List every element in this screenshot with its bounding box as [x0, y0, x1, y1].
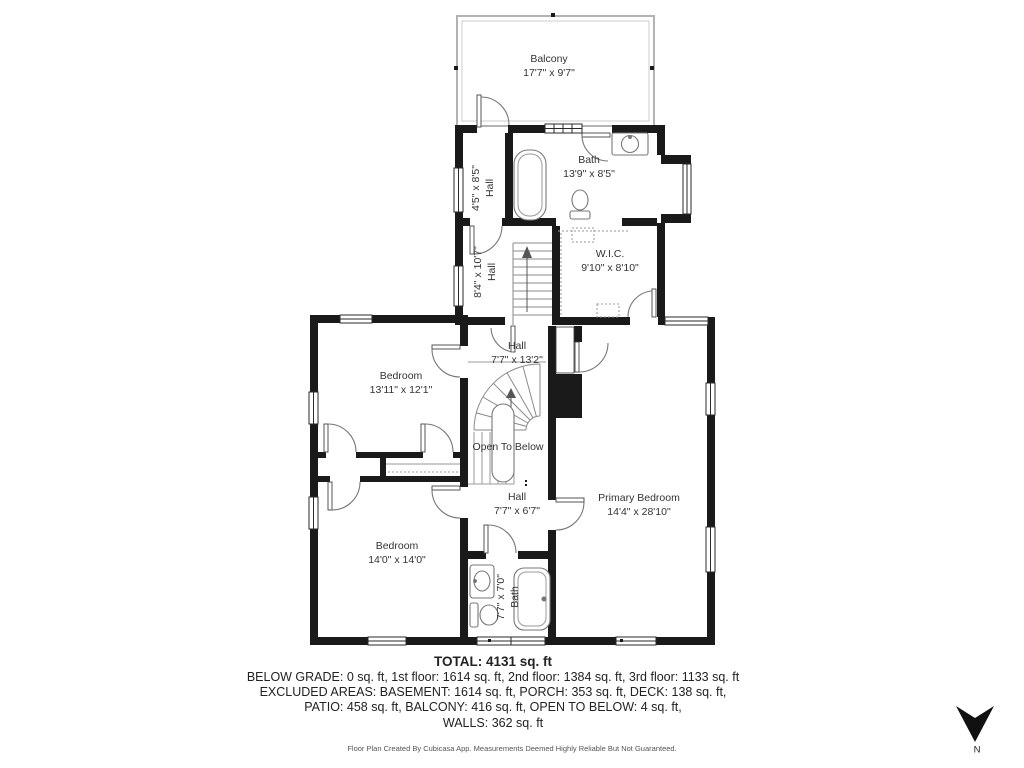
floor-plan-drawing — [0, 0, 1024, 768]
room-dims: 13'11" x 12'1" — [370, 384, 433, 398]
disclaimer-text: Floor Plan Created By Cubicasa App. Meas… — [347, 744, 676, 753]
room-label-wic: W.I.C. 9'10" x 8'10" — [581, 248, 639, 276]
room-label-bedroom-lower: Bedroom 14'0" x 14'0" — [368, 540, 426, 568]
room-dims: 7'7" x 13'2" — [491, 354, 543, 368]
toilet-lower — [470, 603, 498, 627]
room-label-bedroom-upper: Bedroom 13'11" x 12'1" — [370, 370, 433, 398]
bathtub-upper — [514, 150, 546, 220]
stair-arrow-up — [522, 246, 532, 258]
room-name: Bath — [509, 586, 523, 608]
room-name: Hall — [486, 263, 500, 281]
room-dims: 14'0" x 14'0" — [368, 554, 426, 568]
staircase-upper — [513, 243, 552, 325]
room-dims: 7'7" x 7'0" — [495, 574, 509, 620]
room-dims: 9'10" x 8'10" — [581, 262, 639, 276]
north-label: N — [974, 745, 981, 756]
room-dims: 17'7" x 9'7" — [523, 67, 575, 81]
room-name: Bedroom — [376, 540, 419, 554]
stair-arrow-curved — [506, 388, 516, 398]
area-summary: TOTAL: 4131 sq. ft BELOW GRADE: 0 sq. ft… — [247, 654, 739, 731]
room-label-hall-mid: 8'4" x 10'7" Hall — [472, 246, 500, 298]
room-label-bath-lower: 7'7" x 7'0" Bath — [495, 574, 523, 620]
room-label-hall-lower: Hall 7'7" x 6'7" — [494, 491, 540, 519]
room-name: Hall — [484, 179, 498, 197]
room-name: Open To Below — [472, 441, 543, 455]
room-label-balcony: Balcony 17'7" x 9'7" — [523, 53, 575, 81]
room-name: Primary Bedroom — [598, 492, 680, 506]
total-area: TOTAL: 4131 sq. ft — [247, 654, 739, 670]
room-name: Balcony — [530, 53, 567, 67]
room-label-bath-upper: Bath 13'9" x 8'5" — [563, 154, 615, 182]
room-label-primary-bedroom: Primary Bedroom 14'4" x 28'10" — [598, 492, 680, 520]
sink-lower — [470, 565, 494, 598]
room-name: Bath — [578, 154, 600, 168]
floor-plan-page: Balcony 17'7" x 9'7" 4'5" x 8'5" Hall Ba… — [0, 0, 1024, 768]
room-name: Hall — [508, 340, 526, 354]
chimney — [548, 374, 582, 418]
room-name: Bedroom — [380, 370, 423, 384]
room-dims: 8'4" x 10'7" — [472, 246, 486, 298]
room-dims: 7'7" x 6'7" — [494, 505, 540, 519]
chimney-niche — [556, 327, 574, 373]
room-dims: 13'9" x 8'5" — [563, 168, 615, 182]
room-label-hall-stair: Hall 7'7" x 13'2" — [491, 340, 543, 368]
summary-line-excluded2: PATIO: 458 sq. ft, BALCONY: 416 sq. ft, … — [247, 700, 739, 715]
sink-upper — [612, 133, 648, 155]
toilet-upper — [570, 190, 590, 219]
room-label-open-to-below: Open To Below — [472, 441, 543, 455]
room-label-hall-upper: 4'5" x 8'5" Hall — [470, 165, 498, 211]
room-name: Hall — [508, 491, 526, 505]
summary-line-walls: WALLS: 362 sq. ft — [247, 716, 739, 731]
room-name: W.I.C. — [596, 248, 625, 262]
summary-line-excluded: EXCLUDED AREAS: BASEMENT: 1614 sq. ft, P… — [247, 685, 739, 700]
room-dims: 4'5" x 8'5" — [470, 165, 484, 211]
summary-line-floors: BELOW GRADE: 0 sq. ft, 1st floor: 1614 s… — [247, 670, 739, 685]
room-dims: 14'4" x 28'10" — [607, 506, 670, 520]
